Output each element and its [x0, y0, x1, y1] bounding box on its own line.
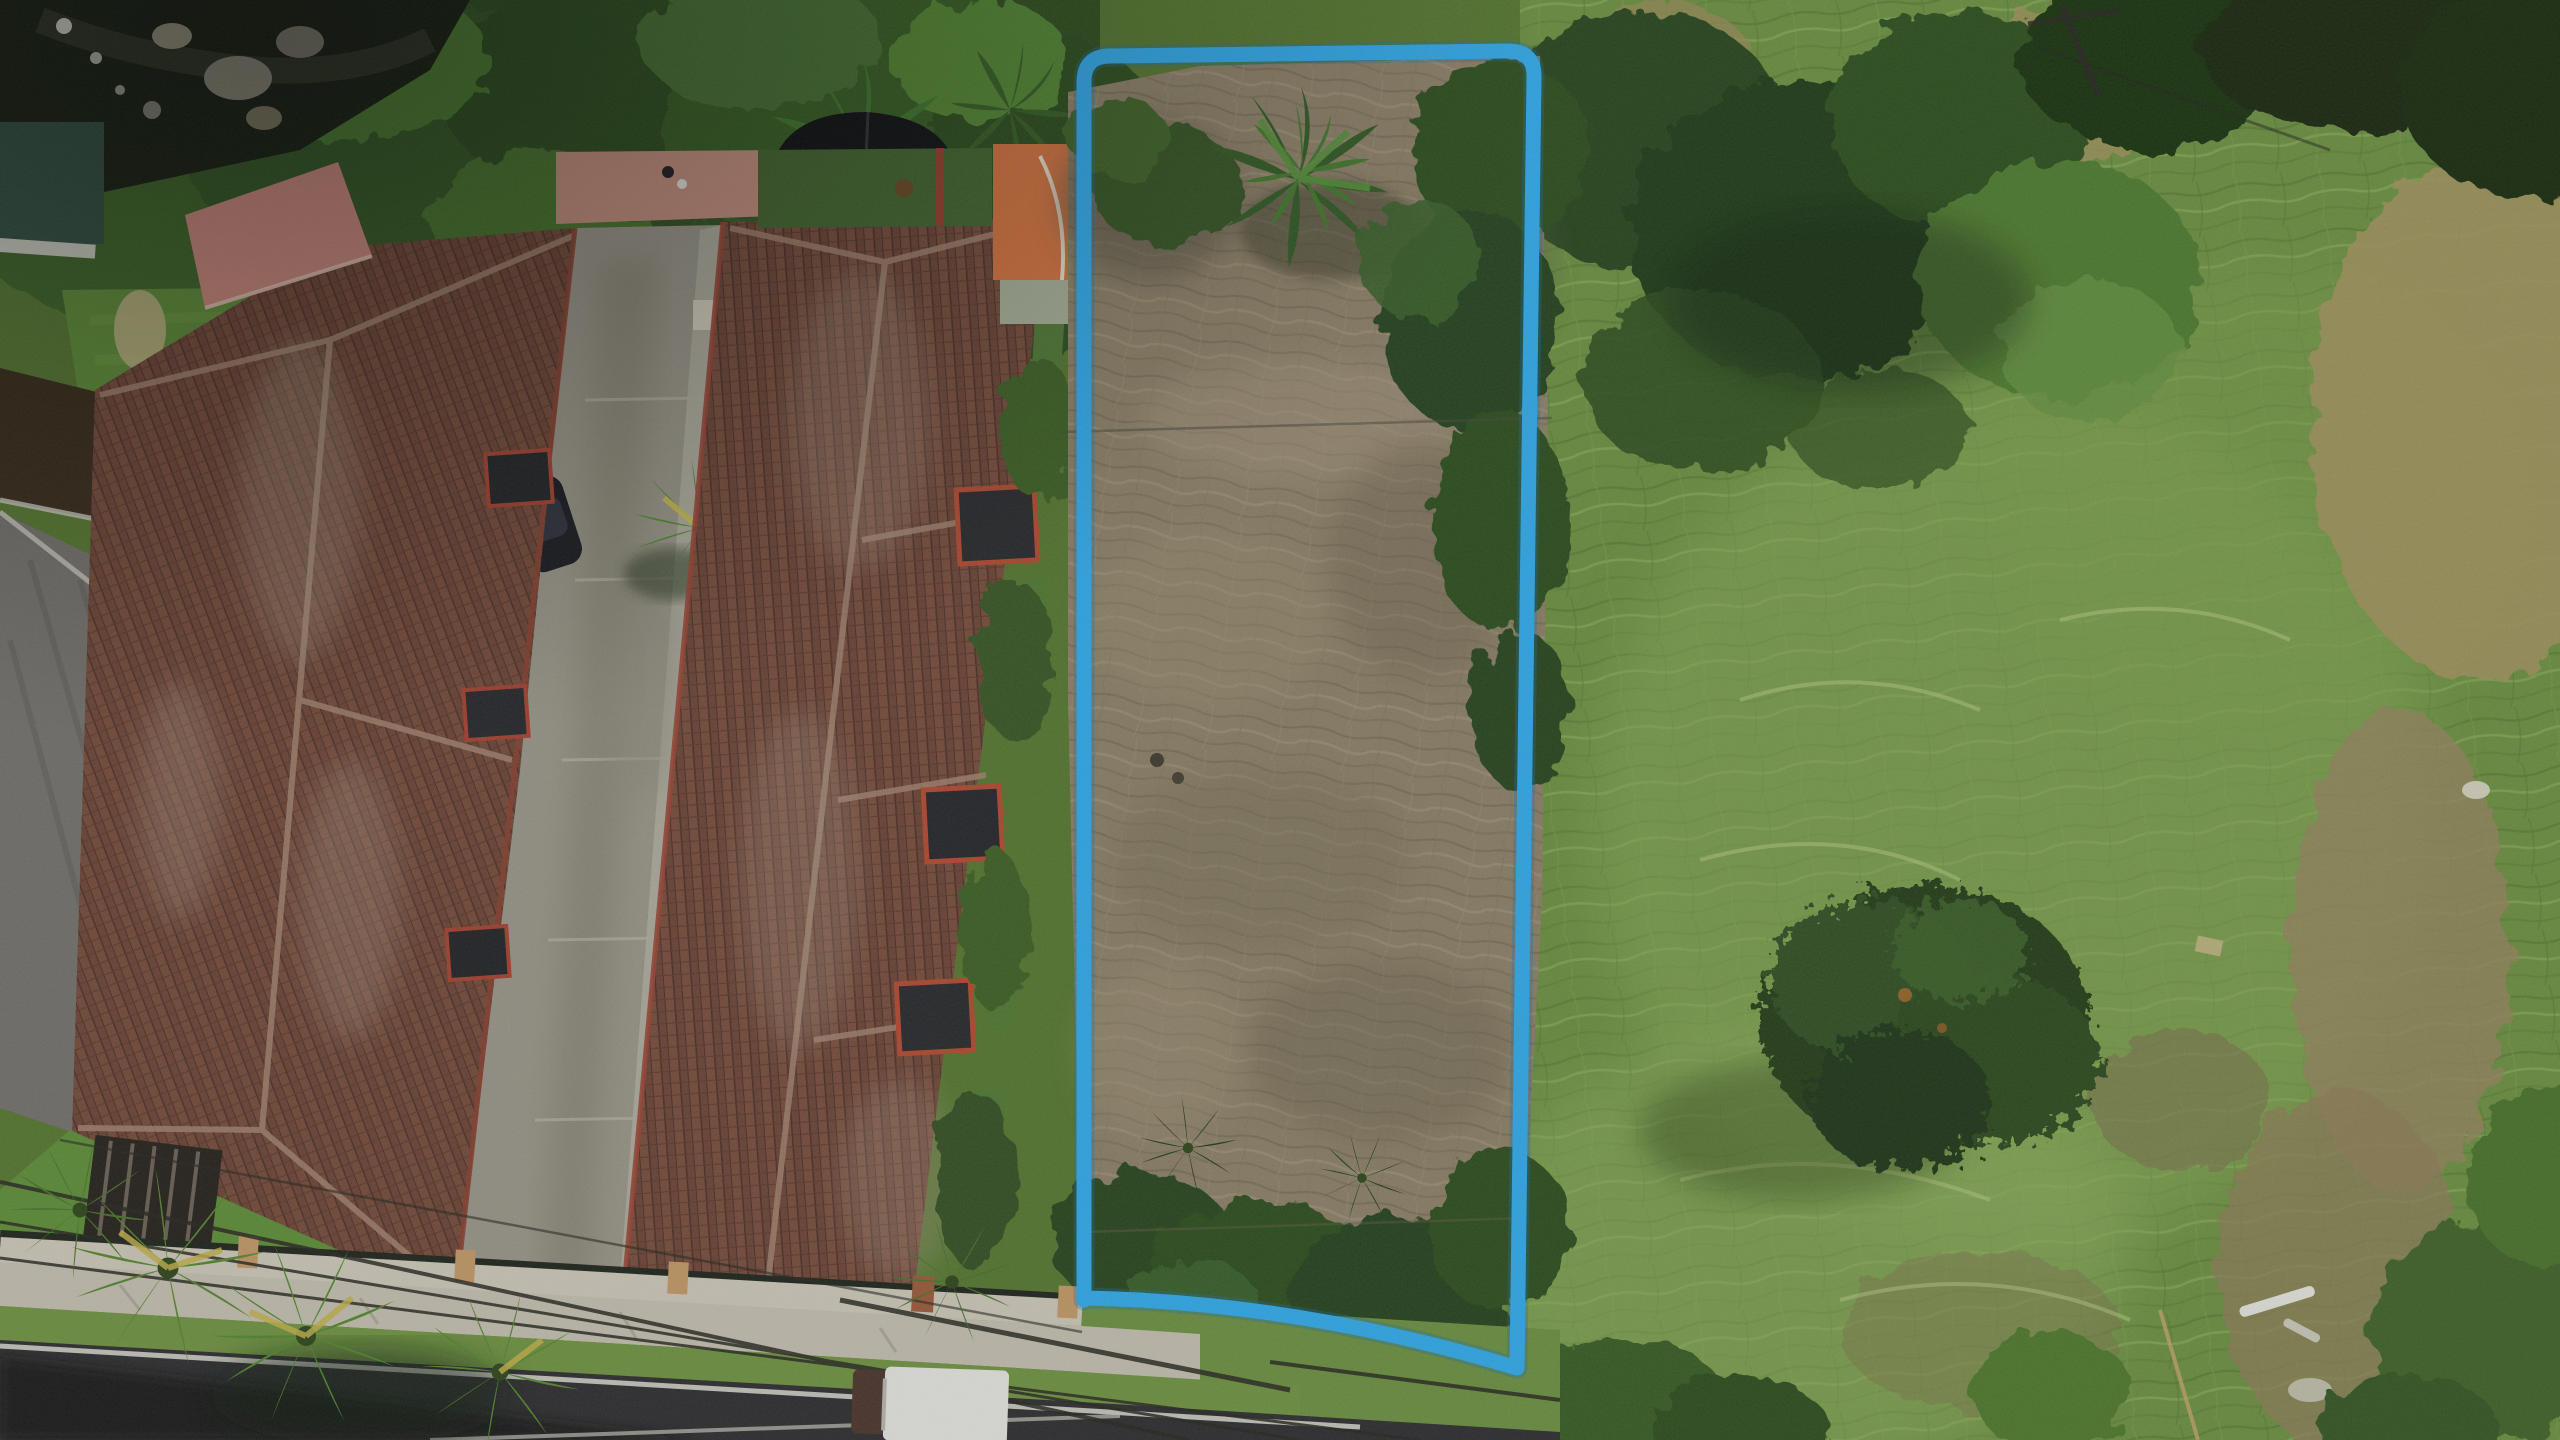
vignette [0, 0, 2560, 1440]
aerial-photo-stage [0, 0, 2560, 1440]
aerial-photo [0, 0, 2560, 1440]
